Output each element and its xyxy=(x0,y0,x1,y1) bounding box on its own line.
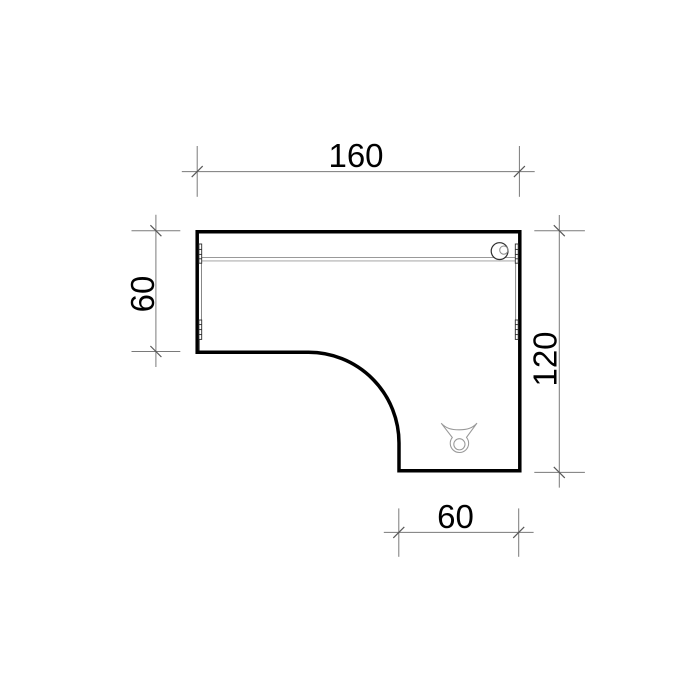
svg-text:60: 60 xyxy=(437,498,474,535)
svg-text:160: 160 xyxy=(328,137,383,174)
svg-text:120: 120 xyxy=(527,331,564,386)
svg-text:60: 60 xyxy=(124,276,161,313)
